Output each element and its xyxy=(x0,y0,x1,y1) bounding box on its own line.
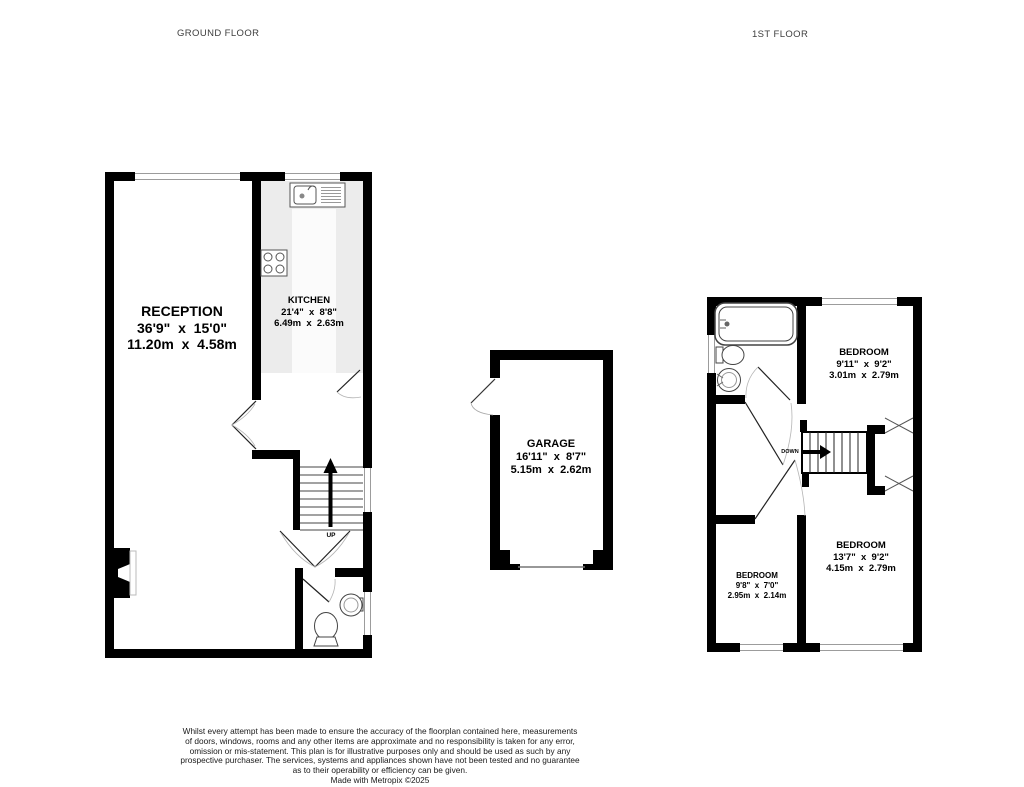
up-label: UP xyxy=(326,532,335,539)
room-name: BEDROOM xyxy=(728,571,787,581)
floorplan-page: GROUND FLOOR 1ST FLOOR xyxy=(0,0,1024,787)
room-dims-imperial: 21'4" x 8'8" xyxy=(274,307,344,319)
room-dims-metric: 6.49m x 2.63m xyxy=(274,318,344,330)
bath-icon xyxy=(715,303,797,345)
toilet-icon xyxy=(314,613,338,647)
hob-icon xyxy=(261,250,287,276)
first-floor-title: 1ST FLOOR xyxy=(752,29,808,40)
room-name: RECEPTION xyxy=(127,303,237,320)
room-dims-metric: 3.01m x 2.79m xyxy=(829,370,899,382)
basin-icon xyxy=(717,369,741,392)
room-dims-metric: 2.95m x 2.14m xyxy=(728,591,787,601)
bedroom-front-label: BEDROOM 13'7" x 9'2" 4.15m x 2.79m xyxy=(826,540,896,575)
down-label: DOWN xyxy=(781,449,798,455)
bedroom-rear-label: BEDROOM 9'11" x 9'2" 3.01m x 2.79m xyxy=(829,347,899,382)
ground-floor-title: GROUND FLOOR xyxy=(177,28,259,39)
garage-label: GARAGE 16'11" x 8'7" 5.15m x 2.62m xyxy=(511,438,592,477)
room-dims-imperial: 16'11" x 8'7" xyxy=(511,451,592,464)
kitchen-sink-icon xyxy=(290,183,345,207)
kitchen-label: KITCHEN 21'4" x 8'8" 6.49m x 2.63m xyxy=(274,295,344,330)
room-name: KITCHEN xyxy=(274,295,344,307)
room-dims-imperial: 9'8" x 7'0" xyxy=(728,581,787,591)
door-symbols xyxy=(885,418,913,491)
up-arrow-icon xyxy=(324,458,338,527)
room-dims-imperial: 9'11" x 9'2" xyxy=(829,359,899,371)
first-floor-plan xyxy=(700,290,930,660)
fireplace-icon xyxy=(114,548,136,598)
room-dims-imperial: 36'9" x 15'0" xyxy=(127,320,237,337)
toilet-icon xyxy=(716,346,744,365)
room-dims-metric: 5.15m x 2.62m xyxy=(511,464,592,477)
room-name: BEDROOM xyxy=(826,540,896,552)
bedroom-small-label: BEDROOM 9'8" x 7'0" 2.95m x 2.14m xyxy=(728,571,787,601)
room-name: BEDROOM xyxy=(829,347,899,359)
ground-floor-plan xyxy=(95,165,385,670)
kitchen-floor xyxy=(261,181,363,373)
metropix-credit: Made with Metropix ©2025 xyxy=(100,776,660,786)
reception-label: RECEPTION 36'9" x 15'0" 11.20m x 4.58m xyxy=(127,303,237,353)
disclaimer: Whilst every attempt has been made to en… xyxy=(100,727,660,786)
door-arcs xyxy=(746,367,805,516)
side-door-swing xyxy=(471,379,495,415)
door-swings xyxy=(745,367,795,519)
room-name: GARAGE xyxy=(511,438,592,451)
room-dims-metric: 11.20m x 4.58m xyxy=(127,336,237,353)
room-dims-metric: 4.15m x 2.79m xyxy=(826,563,896,575)
room-dims-imperial: 13'7" x 9'2" xyxy=(826,552,896,564)
wc-basin-icon xyxy=(340,594,363,616)
